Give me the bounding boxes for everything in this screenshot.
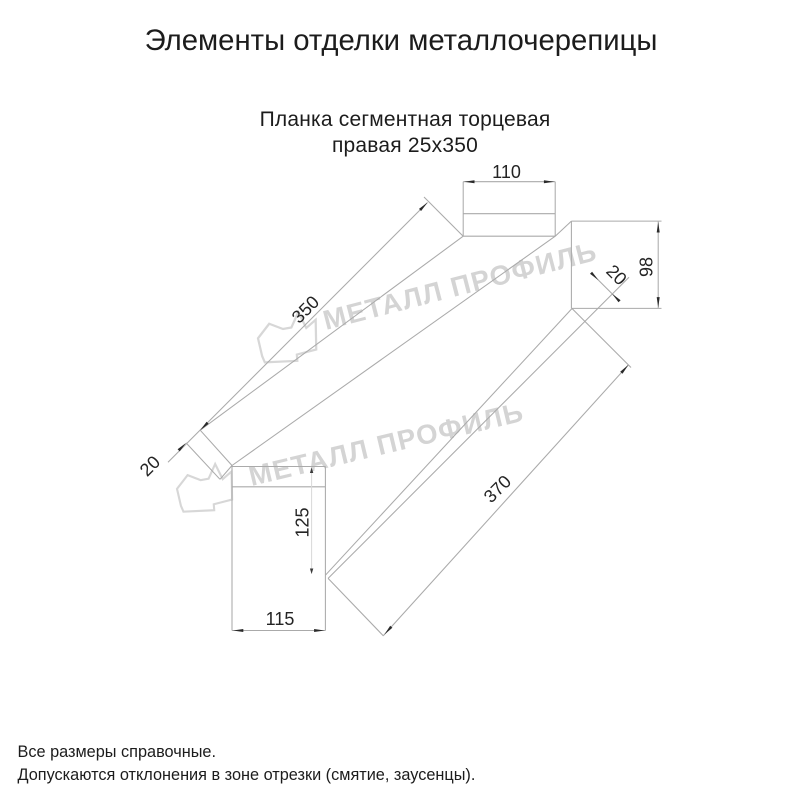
- svg-text:125: 125: [293, 507, 313, 537]
- svg-text:370: 370: [480, 471, 515, 506]
- svg-text:98: 98: [637, 257, 657, 277]
- svg-text:115: 115: [266, 609, 295, 629]
- svg-text:МЕТАЛЛ ПРОФИЛЬ: МЕТАЛЛ ПРОФИЛЬ: [320, 235, 601, 336]
- svg-text:20: 20: [602, 261, 630, 289]
- svg-text:20: 20: [136, 452, 164, 480]
- svg-text:МЕТАЛЛ ПРОФИЛЬ: МЕТАЛЛ ПРОФИЛЬ: [246, 396, 527, 492]
- svg-text:110: 110: [492, 162, 521, 182]
